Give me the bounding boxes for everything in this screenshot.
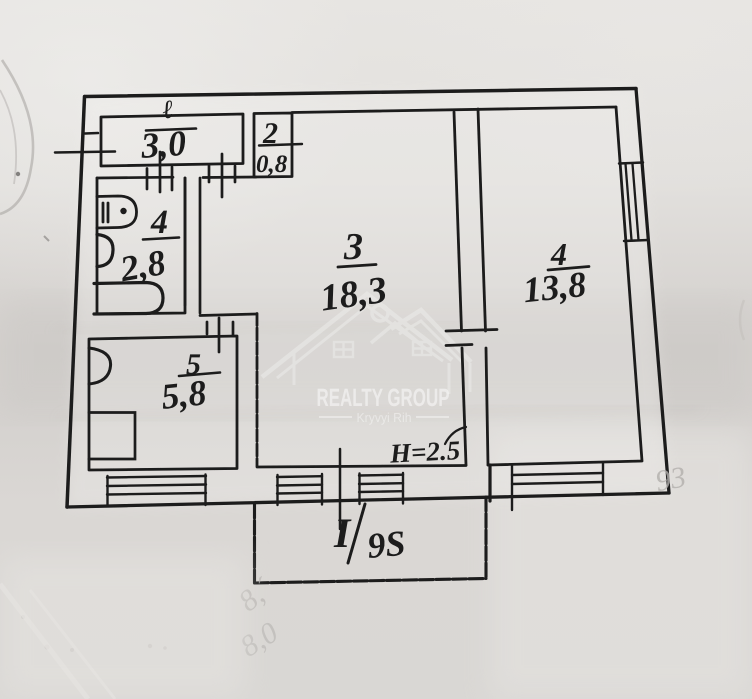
svg-text:2,8: 2,8 — [116, 242, 168, 289]
svg-text:H=2.5: H=2.5 — [388, 435, 461, 469]
svg-text:3,0: 3,0 — [139, 123, 188, 166]
svg-text:3: 3 — [343, 226, 363, 268]
svg-text:REALTY GROUP: REALTY GROUP — [317, 384, 450, 412]
svg-text:13,8: 13,8 — [521, 264, 588, 310]
svg-text:Kryvyi Rih: Kryvyi Rih — [357, 410, 412, 425]
svg-text:4: 4 — [150, 204, 168, 241]
svg-text:I: I — [333, 511, 352, 557]
svg-text:0,8: 0,8 — [256, 151, 288, 178]
svg-text:2: 2 — [262, 117, 278, 150]
svg-text:9S: 9S — [366, 523, 407, 566]
svg-text:5,8: 5,8 — [159, 372, 208, 416]
svg-text:93: 93 — [653, 460, 688, 498]
